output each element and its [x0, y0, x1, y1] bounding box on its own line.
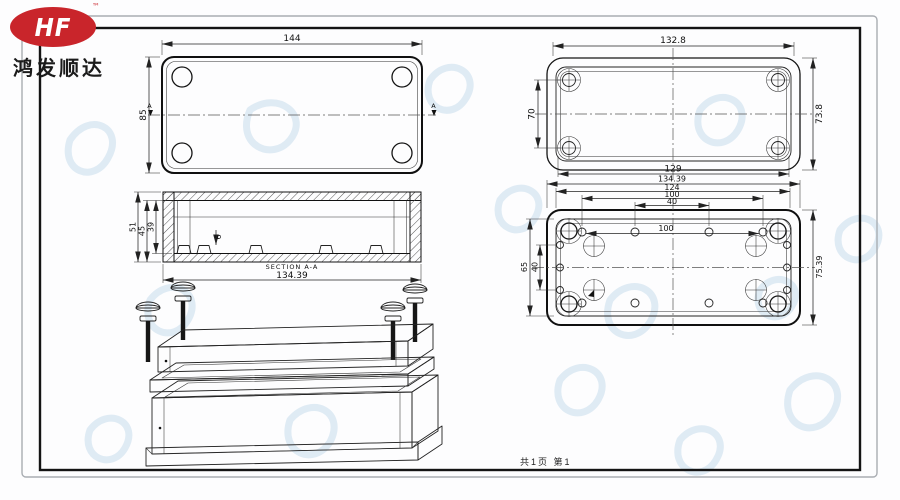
dim-label: 40 — [667, 197, 677, 206]
dim-width-132-8: 132.8 — [553, 36, 794, 56]
dim-label: 129 — [664, 165, 681, 175]
dim-label: 132.8 — [660, 36, 686, 46]
dim-width-row-100: 100 — [586, 224, 759, 234]
drawing-canvas: A A 144 85 — [0, 0, 900, 500]
section-title: SECTION A-A — [266, 263, 319, 271]
dim-label: 75.39 — [815, 256, 824, 279]
datum-wedge — [588, 290, 594, 297]
drawing-sheet: A A 144 85 — [0, 0, 900, 500]
trademark-symbol: ™ — [92, 2, 100, 11]
dim-label: 39 — [147, 222, 156, 232]
dim-label: 40 — [531, 262, 540, 272]
dim-label: 6 — [214, 234, 223, 239]
company-logo: HF — [10, 7, 96, 47]
dim-label: 65 — [520, 262, 529, 272]
lid-inner-view: 132.8 70 73.8 129 — [528, 36, 826, 180]
lid-top-view: A A 144 85 — [139, 34, 437, 173]
base-bottom-view: 134.39 124 100 40 — [520, 175, 824, 337]
screw-cap-covers — [136, 282, 427, 311]
section-marker-right: A — [431, 102, 436, 116]
screws — [140, 296, 423, 362]
outer-sheet-border — [22, 16, 877, 477]
dim-label: 144 — [283, 34, 300, 44]
corner-screw-holes — [558, 69, 790, 160]
dim-label: 70 — [528, 108, 538, 120]
dim-label: 100 — [658, 224, 673, 233]
exploded-view — [136, 282, 442, 466]
logo-monogram: HF — [35, 13, 72, 42]
dim-label: 73.8 — [815, 104, 825, 124]
page-info: 共1页 第1 — [520, 455, 572, 468]
dim-label: 51 — [129, 222, 138, 232]
section-view: 6 51 45 39 SECTION A-A — [129, 192, 422, 283]
dim-height-75-39: 75.39 — [802, 210, 824, 325]
dim-label: 134.39 — [276, 271, 308, 281]
dim-width-144: 144 — [162, 34, 422, 55]
section-marker-label: A — [431, 102, 436, 110]
bottom-bosses — [177, 246, 383, 254]
section-marker-label: A — [147, 102, 152, 110]
company-name: 鸿发顺达 — [13, 52, 105, 81]
exploded-seal-rim — [150, 357, 434, 392]
dim-label: 45 — [138, 226, 147, 236]
dim-boss-6: 6 — [214, 230, 223, 245]
dim-width-100: 100 — [582, 190, 763, 226]
dim-label: 85 — [139, 109, 149, 120]
dim-width-40: 40 — [635, 197, 709, 226]
